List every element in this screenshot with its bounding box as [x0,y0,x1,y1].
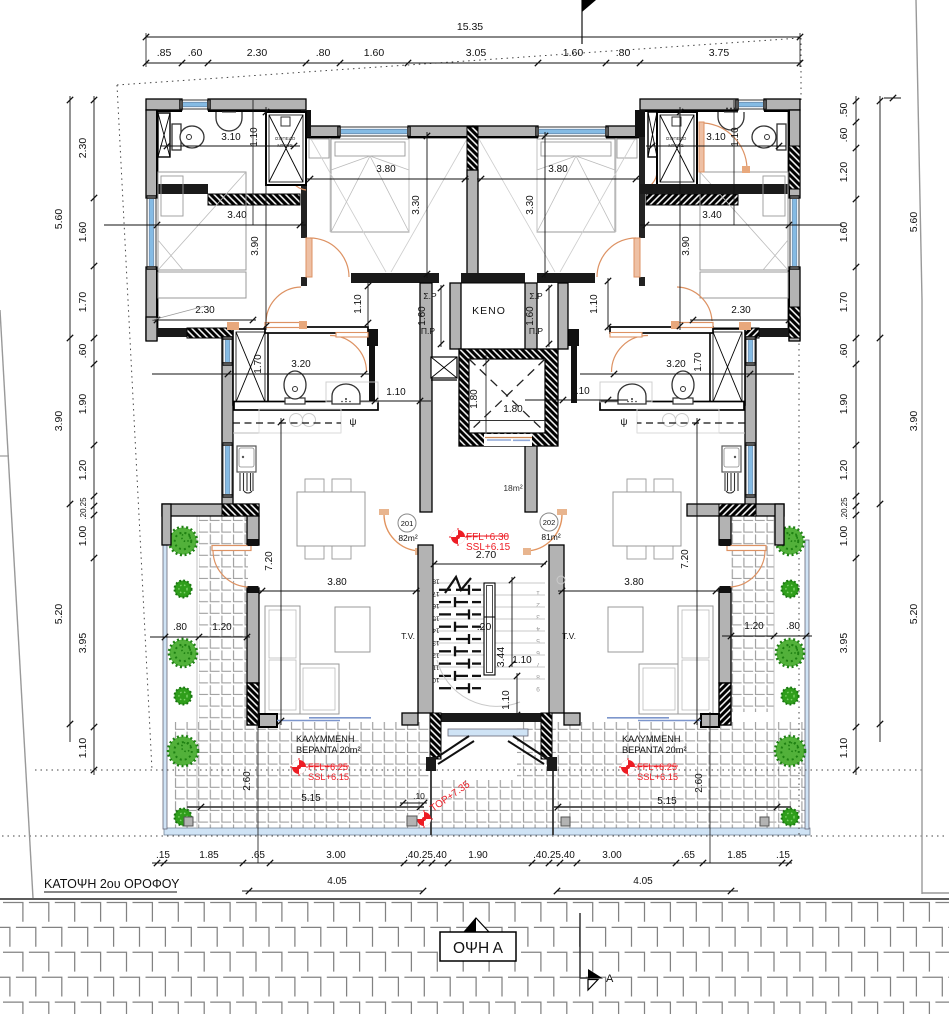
svg-text:1.90: 1.90 [77,394,89,415]
svg-text:2.30: 2.30 [247,47,268,59]
svg-text:7.20: 7.20 [680,549,691,569]
svg-text:.10: .10 [413,791,425,801]
svg-text:2.30: 2.30 [731,305,751,316]
svg-text:ΙΣΟΠΕΔΟ: ΙΣΟΠΕΔΟ [275,136,296,141]
svg-text:1.10: 1.10 [570,386,590,397]
svg-text:ΚΑΛΥΜΜΕΝΗ: ΚΑΛΥΜΜΕΝΗ [296,734,355,744]
svg-text:3.95: 3.95 [838,633,850,654]
svg-text:15: 15 [432,614,440,621]
svg-text:.20: .20 [79,508,88,520]
svg-text:3.20: 3.20 [291,359,311,370]
svg-text:1.70: 1.70 [253,354,264,374]
svg-text:1.60: 1.60 [525,306,536,326]
svg-text:.25: .25 [840,497,849,509]
svg-text:16: 16 [432,602,440,609]
svg-text:A: A [606,973,614,985]
svg-text:1.10: 1.10 [353,294,364,314]
svg-text:T.V.: T.V. [401,631,415,641]
svg-text:Π.Ρ: Π.Ρ [529,326,544,336]
svg-text:5.20: 5.20 [908,604,920,625]
svg-text:Π.Ρ: Π.Ρ [421,326,436,336]
svg-text:SSL+6.15: SSL+6.15 [637,772,678,782]
svg-text:3.05: 3.05 [466,47,487,59]
svg-text:1.60: 1.60 [77,222,89,243]
svg-text:3.90: 3.90 [250,236,261,256]
svg-text:9: 9 [536,685,540,692]
svg-text:.40.25.40: .40.25.40 [405,850,447,861]
svg-text:5.20: 5.20 [53,604,65,625]
svg-text:ΚΑΤΟΨΗ 2ου ΟΡΟΦΟΥ: ΚΑΤΟΨΗ 2ου ΟΡΟΦΟΥ [44,877,180,891]
svg-text:3.90: 3.90 [908,411,920,432]
svg-text:.60: .60 [838,344,850,359]
svg-text:14: 14 [432,627,440,634]
svg-text:KENO: KENO [472,305,506,317]
svg-text:.80: .80 [616,47,631,59]
svg-text:1.20: 1.20 [212,622,232,633]
svg-text:12: 12 [432,651,440,658]
svg-text:3.40: 3.40 [702,210,722,221]
svg-text:.65: .65 [681,850,695,861]
svg-text:.60: .60 [838,128,850,143]
svg-text:T.V.: T.V. [562,631,576,641]
svg-text:3.10: 3.10 [221,132,241,143]
svg-text:3.80: 3.80 [327,577,347,588]
svg-text:ΒΕΡΑΝΤΑ 20m²: ΒΕΡΑΝΤΑ 20m² [622,745,687,755]
svg-text:4.05: 4.05 [327,876,347,887]
svg-text:1.20: 1.20 [838,162,850,183]
svg-text:2.30: 2.30 [195,305,215,316]
svg-text:1.10: 1.10 [501,690,512,710]
svg-text:5.15: 5.15 [301,793,321,804]
svg-text:3.80: 3.80 [624,577,644,588]
svg-text:1.80: 1.80 [469,389,480,409]
svg-text:.85: .85 [157,47,172,59]
svg-text:18: 18 [432,578,440,585]
svg-text:.60: .60 [77,344,89,359]
svg-text:3.44: 3.44 [495,647,507,668]
svg-text:82m²: 82m² [398,533,418,543]
svg-text:1.90: 1.90 [468,850,488,861]
svg-text:ΒΕΡΑΝΤΑ 20m²: ΒΕΡΑΝΤΑ 20m² [296,745,361,755]
svg-text:5.15: 5.15 [657,796,677,807]
svg-text:17: 17 [432,590,440,597]
svg-text:.80: .80 [316,47,331,59]
svg-text:2.70: 2.70 [476,549,497,561]
svg-text:3.90: 3.90 [53,411,65,432]
svg-text:5.60: 5.60 [908,212,920,233]
svg-text:3.80: 3.80 [548,164,568,175]
svg-text:SSL+6.15: SSL+6.15 [308,772,349,782]
svg-text:1.00: 1.00 [77,526,89,547]
svg-text:3.30: 3.30 [525,195,536,215]
svg-text:1.10: 1.10 [589,294,600,314]
svg-text:Σ.Ρ: Σ.Ρ [529,291,543,301]
svg-text:1.10: 1.10 [512,655,532,666]
svg-text:1.10: 1.10 [386,387,406,398]
svg-text:1.10: 1.10 [77,738,89,759]
svg-text:3.90: 3.90 [681,236,692,256]
svg-text:.60: .60 [188,47,203,59]
svg-text:3.00: 3.00 [602,850,622,861]
svg-text:1.20: 1.20 [744,621,764,632]
svg-text:ΝΤΟΥΣ: ΝΤΟΥΣ [668,143,684,148]
svg-text:3.00: 3.00 [326,850,346,861]
svg-text:1.20: 1.20 [77,460,89,481]
svg-text:1.00: 1.00 [838,526,850,547]
svg-text:3.30: 3.30 [411,195,422,215]
svg-text:ΙΣΟΠΕΔΟ: ΙΣΟΠΕΔΟ [666,136,687,141]
svg-text:.15: .15 [776,850,790,861]
svg-text:.20: .20 [840,508,849,520]
svg-text:1.85: 1.85 [199,850,219,861]
svg-text:ΝΤΟΥΣ: ΝΤΟΥΣ [277,143,293,148]
svg-text:1.90: 1.90 [838,394,850,415]
svg-text:.40.25.40: .40.25.40 [533,850,575,861]
svg-text:18m²: 18m² [503,483,523,493]
svg-text:.80: .80 [173,622,187,633]
svg-text:1.10: 1.10 [838,738,850,759]
svg-text:4.05: 4.05 [633,876,653,887]
svg-text:3.95: 3.95 [77,633,89,654]
svg-text:1.10: 1.10 [249,127,260,147]
svg-text:Σ.Ρ: Σ.Ρ [423,291,437,301]
svg-text:5.60: 5.60 [53,209,65,230]
svg-text:202: 202 [543,518,556,527]
svg-text:.80: .80 [786,621,800,632]
svg-text:1.60: 1.60 [417,306,428,326]
svg-text:ψ: ψ [620,417,627,428]
svg-text:ΚΑΛΥΜΜΕΝΗ: ΚΑΛΥΜΜΕΝΗ [622,734,681,744]
svg-text:10: 10 [432,676,440,683]
svg-text:1.80: 1.80 [503,404,523,415]
svg-text:FFL+6.25: FFL+6.25 [637,762,677,772]
svg-text:1.60: 1.60 [364,47,385,59]
svg-text:7.20: 7.20 [264,551,275,571]
svg-text:15.35: 15.35 [457,21,483,33]
svg-text:1.70: 1.70 [838,292,850,313]
svg-text:1.70: 1.70 [77,292,89,313]
svg-text:1.60: 1.60 [563,47,584,59]
svg-text:1.20: 1.20 [838,460,850,481]
svg-text:ψ: ψ [349,417,356,428]
svg-text:3.40: 3.40 [227,210,247,221]
svg-text:201: 201 [401,519,414,528]
svg-text:13: 13 [432,639,440,646]
svg-text:81m²: 81m² [541,532,561,542]
svg-text:3.80: 3.80 [376,164,396,175]
svg-text:1.10: 1.10 [730,127,741,147]
svg-text:1.85: 1.85 [727,850,747,861]
svg-text:3.10: 3.10 [706,132,726,143]
svg-text:.25: .25 [79,497,88,509]
svg-text:3.20: 3.20 [666,359,686,370]
svg-text:.50: .50 [838,103,850,118]
svg-text:2.60: 2.60 [242,771,253,791]
svg-text:.20: .20 [477,621,492,633]
svg-text:3.75: 3.75 [709,47,730,59]
svg-text:ΟΨΗ Α: ΟΨΗ Α [453,940,504,957]
svg-text:FFL+6.25: FFL+6.25 [308,762,348,772]
svg-text:.15: .15 [156,850,170,861]
svg-text:2.60: 2.60 [694,773,705,793]
svg-text:1.70: 1.70 [693,352,704,372]
svg-text:2.30: 2.30 [77,138,89,159]
